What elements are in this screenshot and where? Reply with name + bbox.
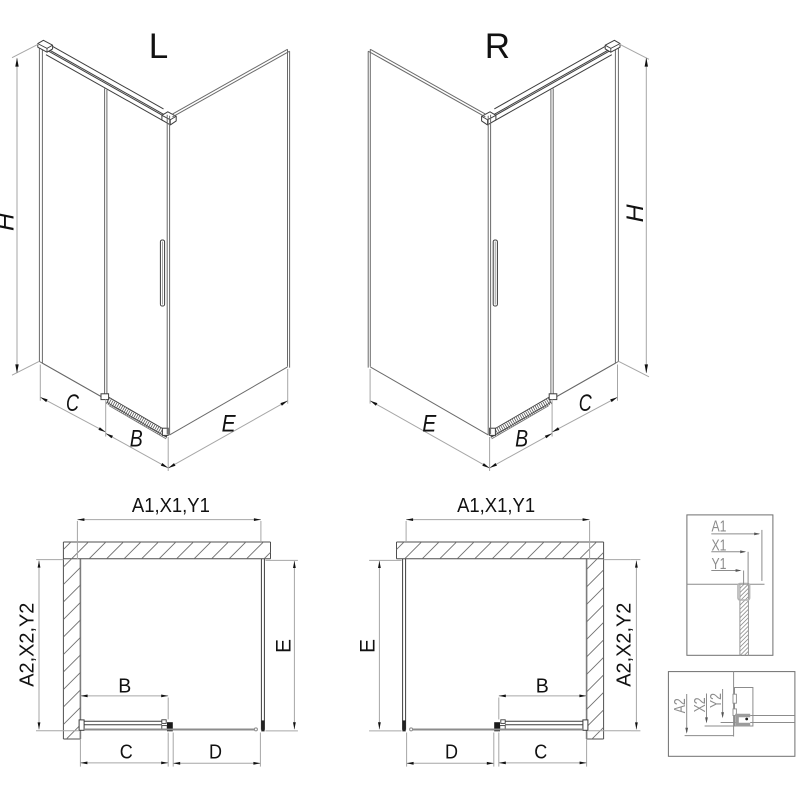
svg-text:B: B (536, 676, 549, 698)
svg-text:C: C (120, 741, 133, 763)
svg-text:C: C (66, 390, 79, 417)
svg-text:B: B (130, 425, 143, 452)
svg-text:A1,X1,Y1: A1,X1,Y1 (132, 495, 210, 517)
svg-text:E: E (422, 410, 437, 437)
svg-text:B: B (515, 425, 528, 452)
svg-text:A2,X2,Y2: A2,X2,Y2 (613, 603, 635, 687)
svg-text:H: H (0, 212, 20, 231)
svg-text:E: E (357, 639, 380, 653)
svg-text:A1,X1,Y1: A1,X1,Y1 (457, 495, 535, 517)
svg-text:A1: A1 (712, 519, 727, 536)
svg-text:A2,X2,Y2: A2,X2,Y2 (16, 603, 38, 687)
svg-text:E: E (222, 410, 237, 437)
svg-text:H: H (622, 204, 649, 223)
svg-text:C: C (534, 741, 547, 763)
svg-text:C: C (579, 390, 592, 417)
svg-text:D: D (209, 741, 222, 763)
svg-text:B: B (118, 676, 131, 698)
svg-text:E: E (272, 639, 295, 653)
svg-text:L: L (149, 27, 168, 66)
svg-text:R: R (485, 27, 510, 66)
svg-text:D: D (445, 741, 458, 763)
